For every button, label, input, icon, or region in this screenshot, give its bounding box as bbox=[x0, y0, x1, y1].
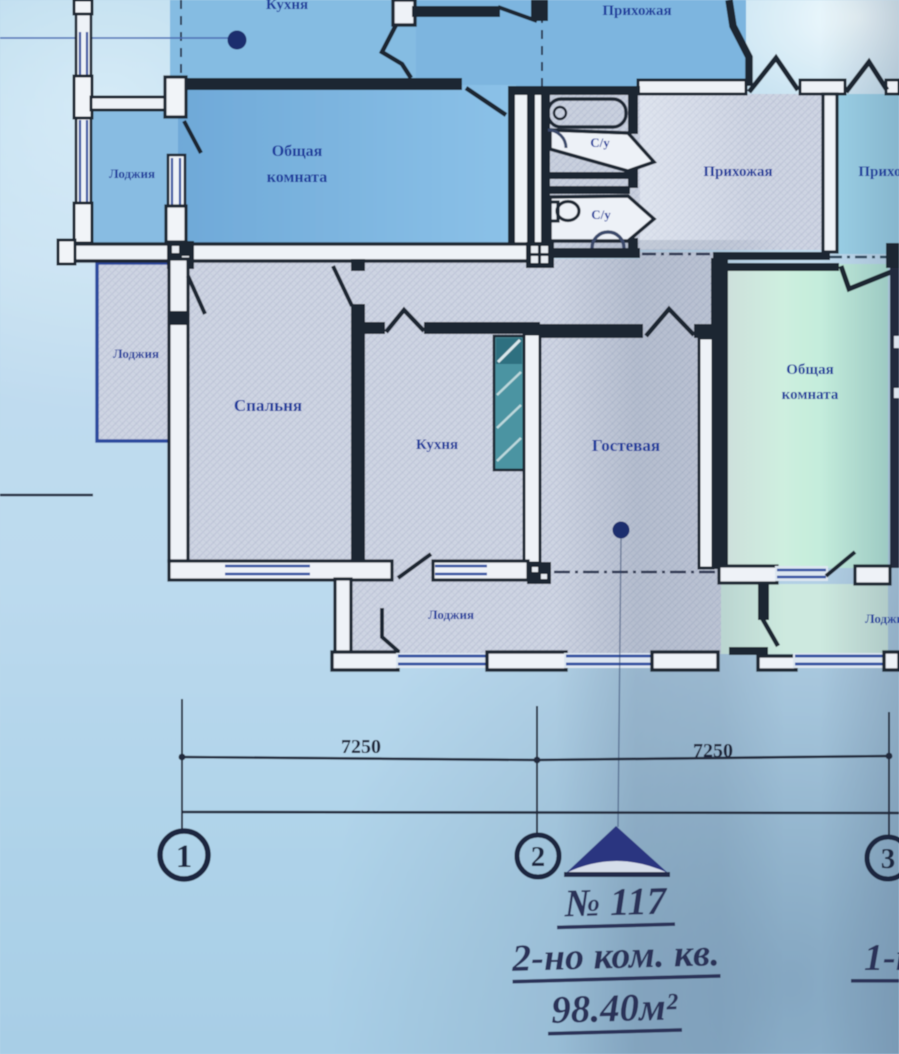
svg-text:Общая: Общая bbox=[272, 143, 323, 160]
svg-text:№ 117: № 117 bbox=[563, 880, 668, 926]
svg-text:комната: комната bbox=[267, 169, 327, 186]
svg-text:Прихожая: Прихожая bbox=[602, 3, 671, 19]
svg-text:С/у: С/у bbox=[591, 207, 611, 222]
svg-text:Лоджия: Лоджия bbox=[865, 611, 899, 626]
svg-text:С/у: С/у bbox=[590, 135, 610, 150]
svg-text:Прихожая: Прихожая bbox=[858, 164, 899, 180]
svg-text:Кухня: Кухня bbox=[416, 437, 458, 453]
svg-text:2: 2 bbox=[531, 841, 546, 873]
svg-text:Лоджия: Лоджия bbox=[428, 607, 474, 622]
svg-text:98.40м²: 98.40м² bbox=[551, 985, 680, 1032]
svg-text:Общая: Общая bbox=[786, 362, 833, 378]
svg-text:Гостевая: Гостевая bbox=[592, 436, 660, 455]
svg-text:7250: 7250 bbox=[693, 740, 733, 762]
svg-text:3: 3 bbox=[881, 843, 896, 875]
svg-text:комната: комната bbox=[782, 387, 839, 403]
svg-text:1-н: 1-н bbox=[864, 937, 899, 979]
svg-text:Лоджия: Лоджия bbox=[109, 166, 155, 181]
svg-text:Лоджия: Лоджия bbox=[113, 346, 159, 361]
svg-text:2-но ком. кв.: 2-но ком. кв. bbox=[511, 932, 720, 980]
svg-text:Кухня: Кухня bbox=[266, 0, 308, 13]
svg-text:1: 1 bbox=[176, 839, 193, 875]
svg-text:Прихожая: Прихожая bbox=[703, 164, 772, 180]
svg-text:7250: 7250 bbox=[341, 736, 381, 758]
svg-text:Спальня: Спальня bbox=[234, 396, 302, 415]
